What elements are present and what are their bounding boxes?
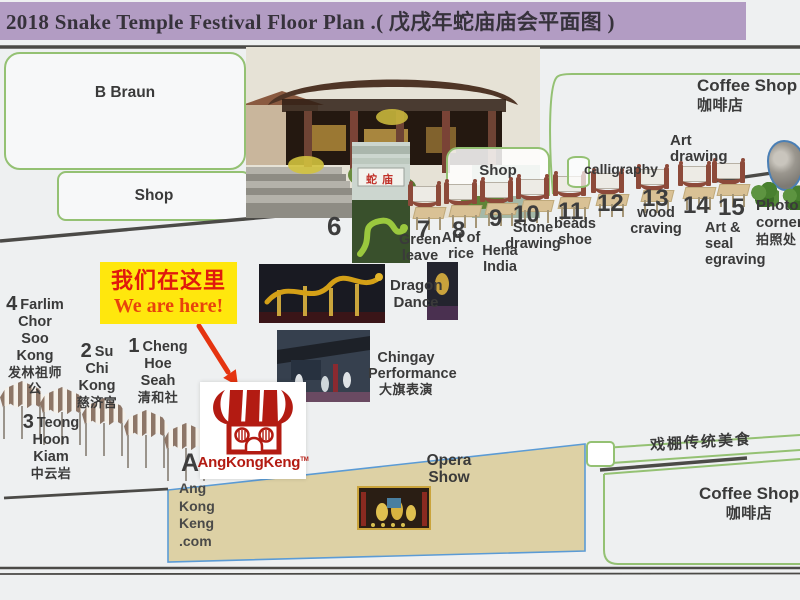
photo-corner-label: Photocorner 拍照处: [756, 197, 800, 248]
angkongkeng-website-label: Ang Kong Keng .com: [179, 480, 227, 550]
angkongkeng-shop-icon: [200, 382, 306, 456]
temple-3-teong-hoon-kiam: 3Teong Hoon Kiam 中云岩: [22, 414, 80, 482]
stall-13-label: woodcraving: [628, 205, 684, 237]
we-are-here-zh: 我们在这里: [111, 268, 226, 294]
stall-15-number: 15: [718, 194, 745, 222]
dragon-dance-label: DragonDance: [390, 277, 442, 311]
we-are-here-en: We are here!: [114, 294, 223, 318]
opera-stage-photo: [357, 486, 431, 530]
floor-plan-canvas: 2018 Snake Temple Festival Floor Plan .(…: [0, 0, 800, 600]
tent-icon: [124, 410, 168, 470]
road-lower-left: [4, 489, 168, 498]
snake-temple-sign: 蛇庙: [356, 171, 408, 187]
opera-show-label: OperaShow: [419, 452, 479, 486]
marker-a: A: [181, 449, 199, 478]
temple-1-cheng-hoe-seah: 1Cheng Hoe Seah 清和社: [128, 338, 188, 406]
stall-11-label: beadsshoe: [552, 216, 598, 248]
calligraphy-label: calligraphy: [584, 161, 658, 177]
here-arrow-icon: [199, 326, 228, 372]
coffee-top-label: Coffee Shop 咖啡店: [697, 76, 797, 116]
road-bottom-2: [0, 574, 800, 575]
coffee-bottom-label: Coffee Shop 咖啡店: [699, 484, 799, 524]
temple-4-farlim-chor-soo-kong: 4Farlim Chor Soo Kong 发林祖师 公: [4, 296, 66, 397]
angkongkeng-logo: AngKongKengTM: [200, 382, 306, 479]
dragon-dance-photo: [259, 264, 385, 323]
art-drawing-label: Artdrawing: [670, 133, 726, 165]
stall-7-label: Greenleave: [396, 232, 444, 264]
we-are-here-callout: 我们在这里 We are here!: [100, 262, 237, 324]
stall-14-number: 14: [683, 192, 710, 220]
shop-mid-label: Shop: [448, 149, 548, 179]
stall-15-label: Art &sealegraving: [705, 220, 763, 268]
stall-12-number: 12: [597, 190, 624, 218]
strip-end-box: [586, 441, 615, 467]
temple-2-su-chi-kong: 2Su Chi Kong 慈济宫: [70, 343, 124, 411]
stall-9-number: 9: [489, 205, 502, 233]
chingay-label: Chingay Performance 大旗表演: [368, 351, 444, 398]
stall-6-number: 6: [327, 211, 341, 242]
angkongkeng-logo-text: AngKongKengTM: [197, 454, 308, 471]
